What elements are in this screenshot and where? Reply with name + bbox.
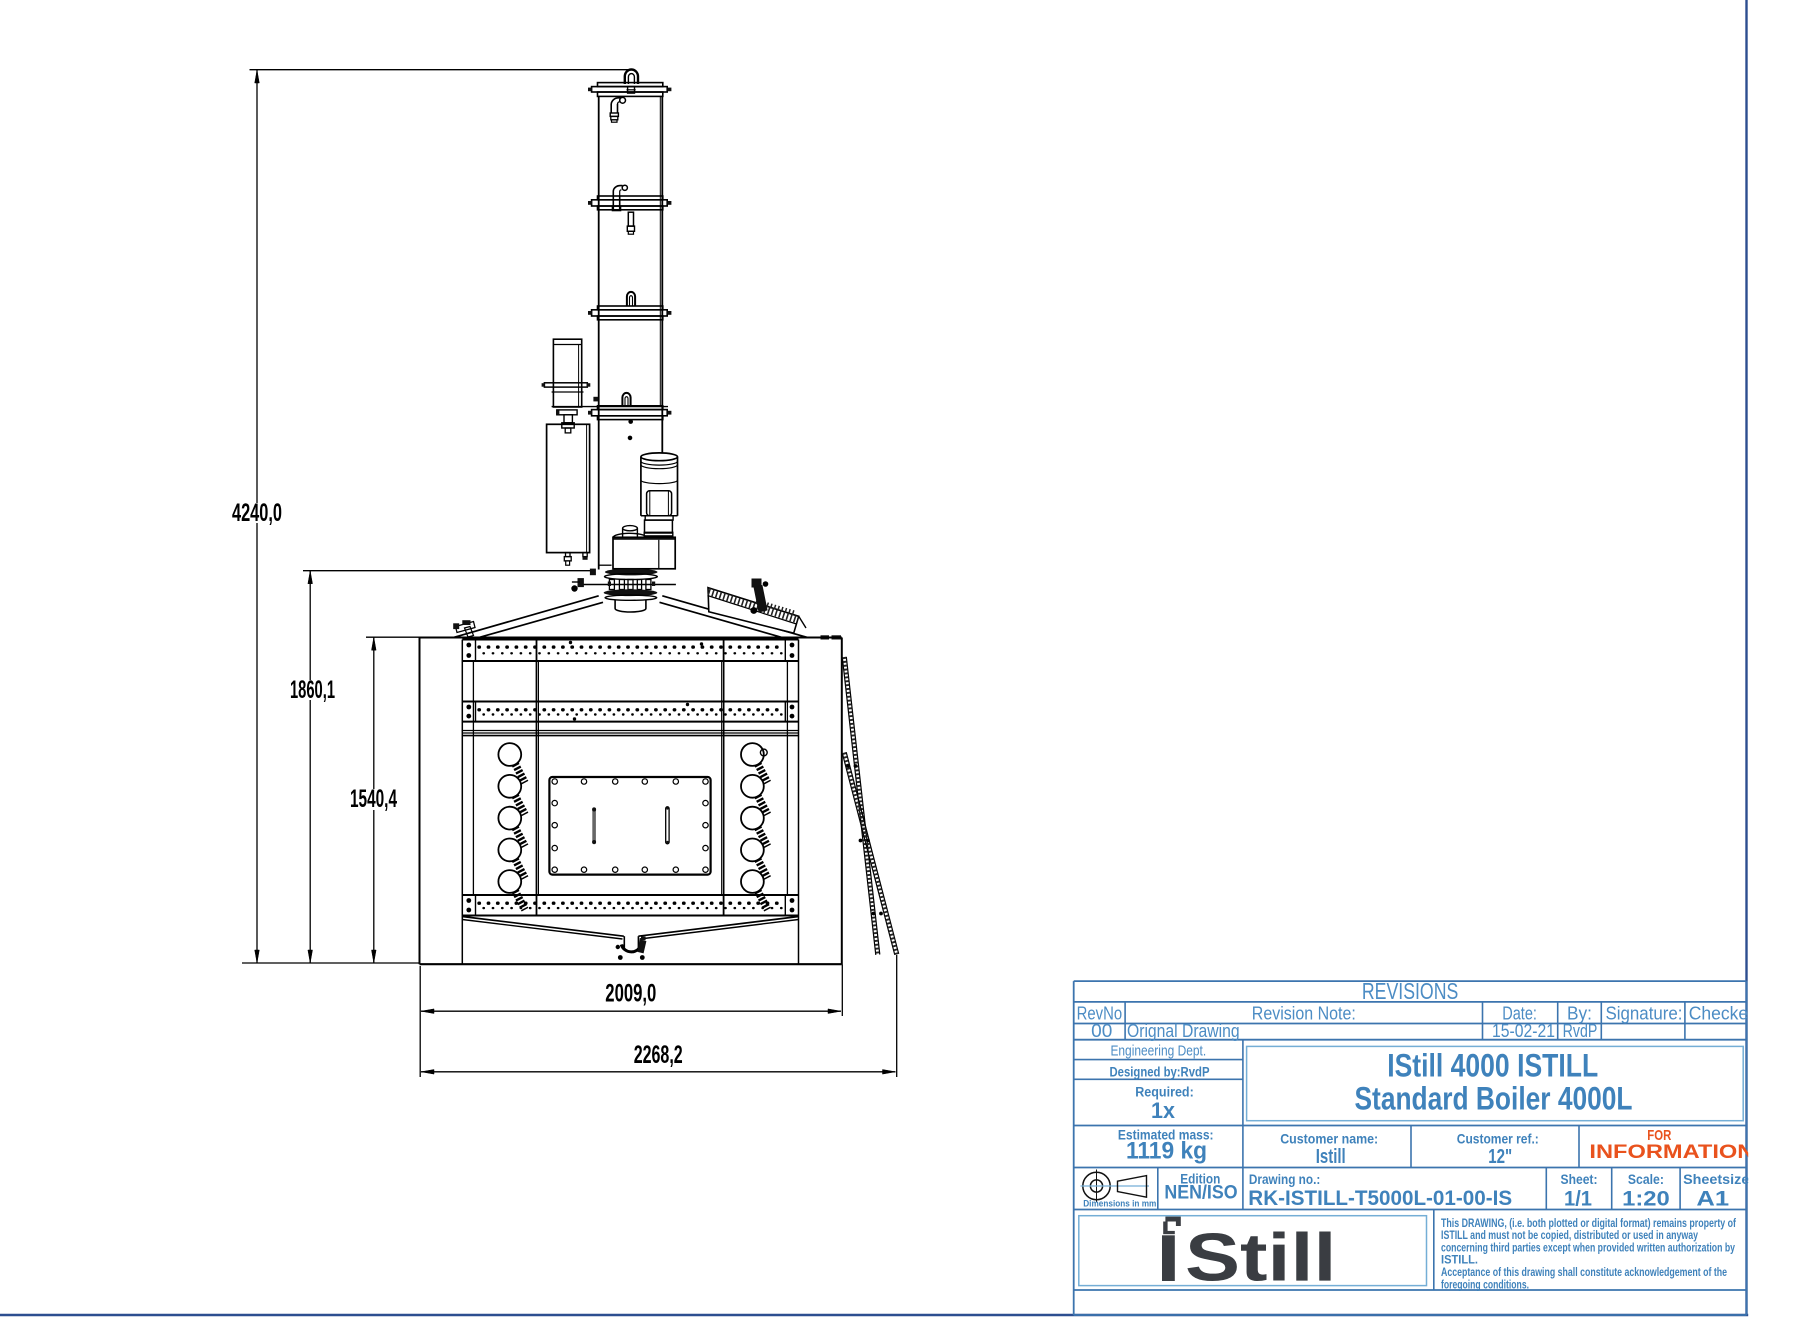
svg-text:15-02-21: 15-02-21 xyxy=(1492,1021,1555,1041)
svg-text:Engineering Dept.: Engineering Dept. xyxy=(1110,1044,1206,1060)
svg-text:1x: 1x xyxy=(1151,1098,1176,1123)
svg-text:A1: A1 xyxy=(1696,1187,1729,1211)
svg-text:1/1: 1/1 xyxy=(1564,1187,1592,1211)
svg-text:RvdP: RvdP xyxy=(1563,1021,1598,1041)
svg-text:foregoing conditions.: foregoing conditions. xyxy=(1441,1277,1529,1291)
svg-text:Sheetsize:: Sheetsize: xyxy=(1683,1172,1754,1187)
svg-text:1540,4: 1540,4 xyxy=(350,785,397,813)
svg-text:Designed by:RvdP: Designed by:RvdP xyxy=(1110,1065,1210,1080)
svg-text:Signature:: Signature: xyxy=(1606,1004,1683,1024)
svg-text:concerning third parties excep: concerning third parties except when pro… xyxy=(1441,1240,1735,1254)
svg-text:2268,2: 2268,2 xyxy=(634,1041,683,1069)
svg-text:1:20: 1:20 xyxy=(1622,1187,1670,1211)
svg-text:12": 12" xyxy=(1488,1146,1512,1168)
svg-text:Orignal Drawing: Orignal Drawing xyxy=(1127,1021,1240,1041)
svg-text:Istill: Istill xyxy=(1316,1146,1346,1168)
svg-text:4240,0: 4240,0 xyxy=(232,499,282,527)
svg-text:2009,0: 2009,0 xyxy=(605,980,656,1008)
svg-text:REVISIONS: REVISIONS xyxy=(1362,978,1458,1004)
svg-text:NEN/ISO: NEN/ISO xyxy=(1164,1182,1237,1204)
svg-text:1860,1: 1860,1 xyxy=(290,676,335,704)
svg-text:Sheet:: Sheet: xyxy=(1561,1172,1598,1187)
svg-text:Standard Boiler 4000L: Standard Boiler 4000L xyxy=(1355,1081,1633,1117)
svg-text:Scale:: Scale: xyxy=(1628,1172,1664,1187)
svg-text:Dimensions in mm: Dimensions in mm xyxy=(1083,1199,1156,1210)
svg-text:Customer ref.:: Customer ref.: xyxy=(1457,1132,1539,1147)
svg-text:INFORMATION: INFORMATION xyxy=(1589,1141,1754,1163)
svg-text:Customer name:: Customer name: xyxy=(1280,1132,1378,1147)
svg-text:1119 kg: 1119 kg xyxy=(1126,1138,1207,1165)
svg-text:Drawing no.:: Drawing no.: xyxy=(1249,1172,1320,1187)
svg-text:RK-ISTILL-T5000L-01-00-IS: RK-ISTILL-T5000L-01-00-IS xyxy=(1248,1187,1512,1210)
svg-text:IStill 4000 ISTILL: IStill 4000 ISTILL xyxy=(1387,1048,1598,1084)
svg-text:Revision Note:: Revision Note: xyxy=(1252,1004,1356,1024)
svg-text:iStill: iStill xyxy=(1162,1220,1336,1296)
svg-text:00: 00 xyxy=(1091,1021,1112,1041)
